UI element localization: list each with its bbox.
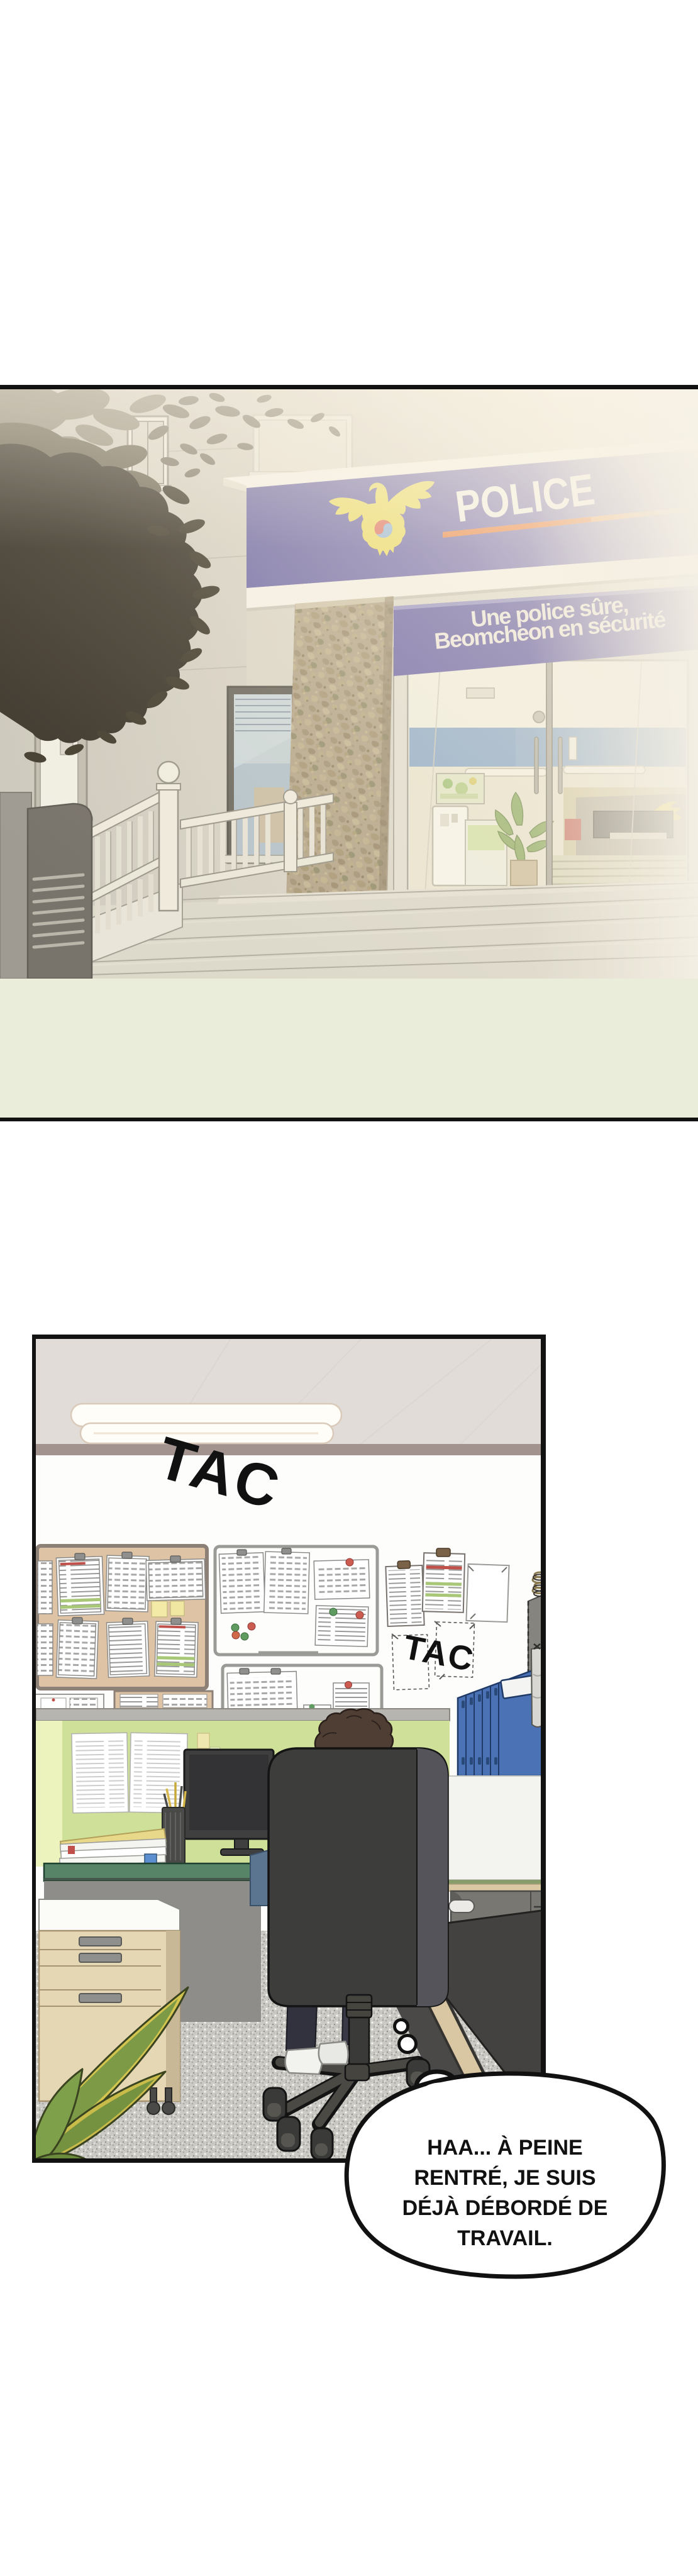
- svg-text:DÉJÀ DÉBORDÉ DE: DÉJÀ DÉBORDÉ DE: [402, 2196, 608, 2220]
- svg-text:HAA... À PEINE: HAA... À PEINE: [427, 2136, 582, 2160]
- svg-text:RENTRÉ, JE SUIS: RENTRÉ, JE SUIS: [414, 2166, 596, 2190]
- svg-text:TRAVAIL.: TRAVAIL.: [457, 2226, 553, 2250]
